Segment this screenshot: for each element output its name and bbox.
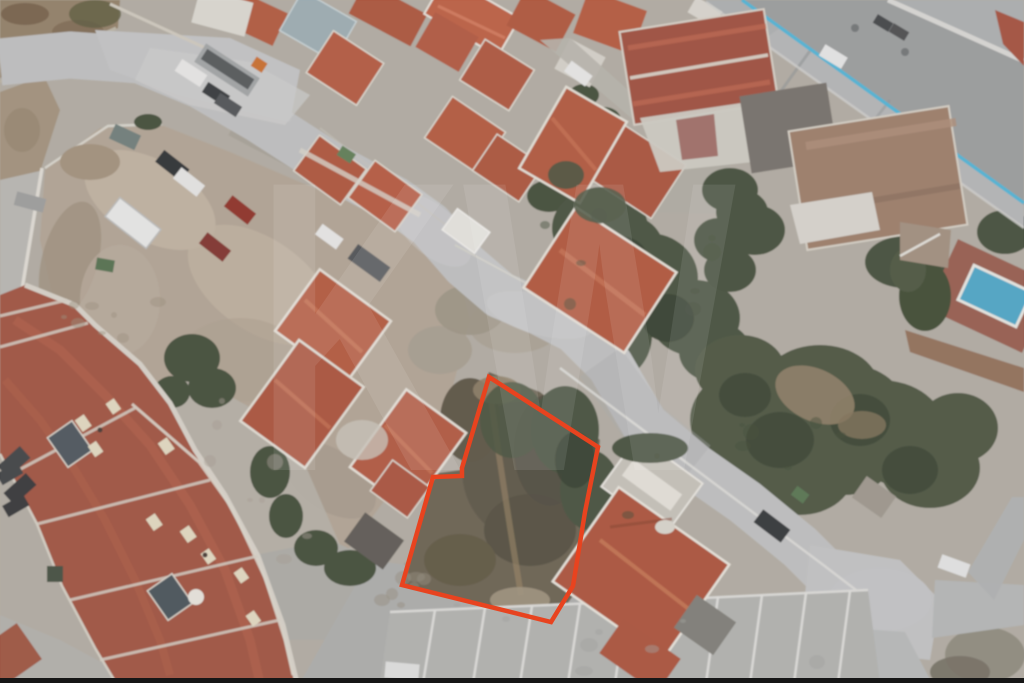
svg-text:KW: KW: [254, 94, 738, 558]
